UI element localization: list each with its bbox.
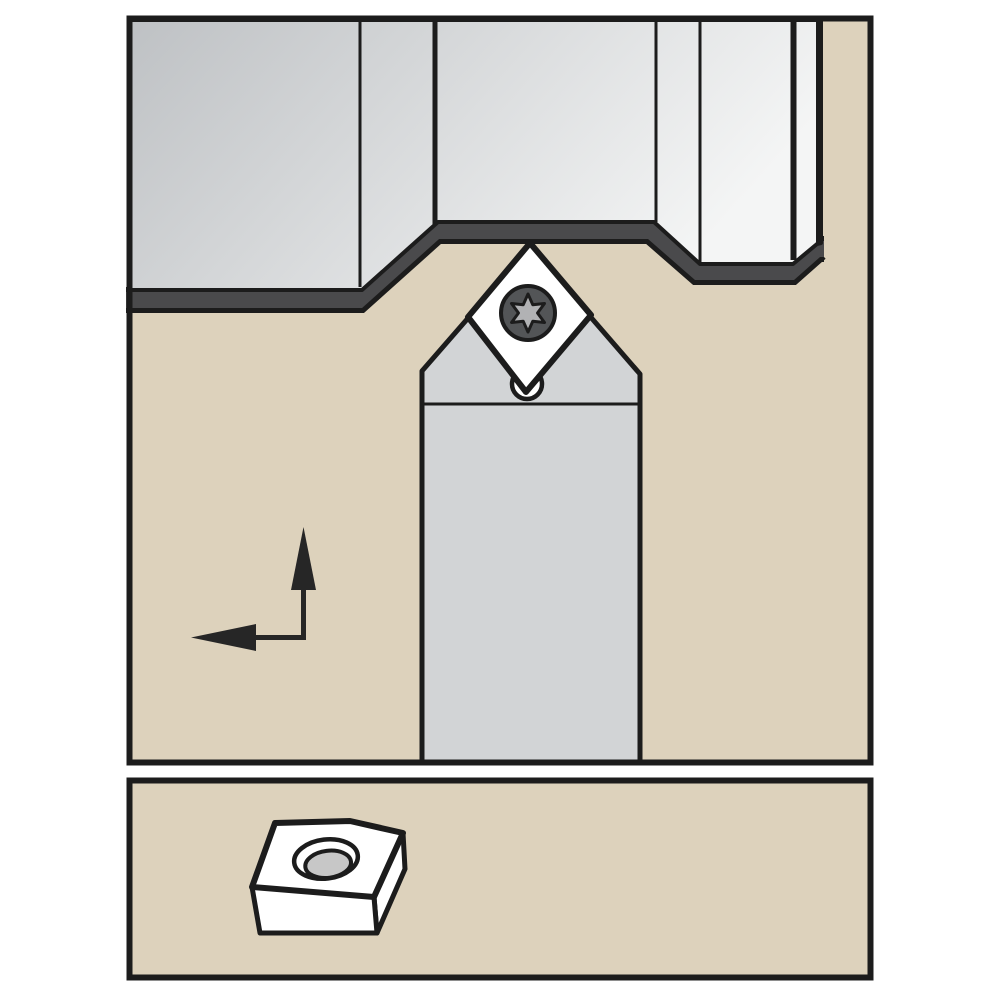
main-view-panel	[126, 19, 871, 764]
toolholder-illustration	[0, 0, 1000, 1000]
illustration-canvas	[0, 0, 1000, 1000]
insert-detail-panel	[130, 781, 871, 978]
detail-panel-background	[130, 781, 871, 978]
insert-3d-detail	[252, 821, 405, 933]
torx-screw-icon	[501, 286, 555, 340]
